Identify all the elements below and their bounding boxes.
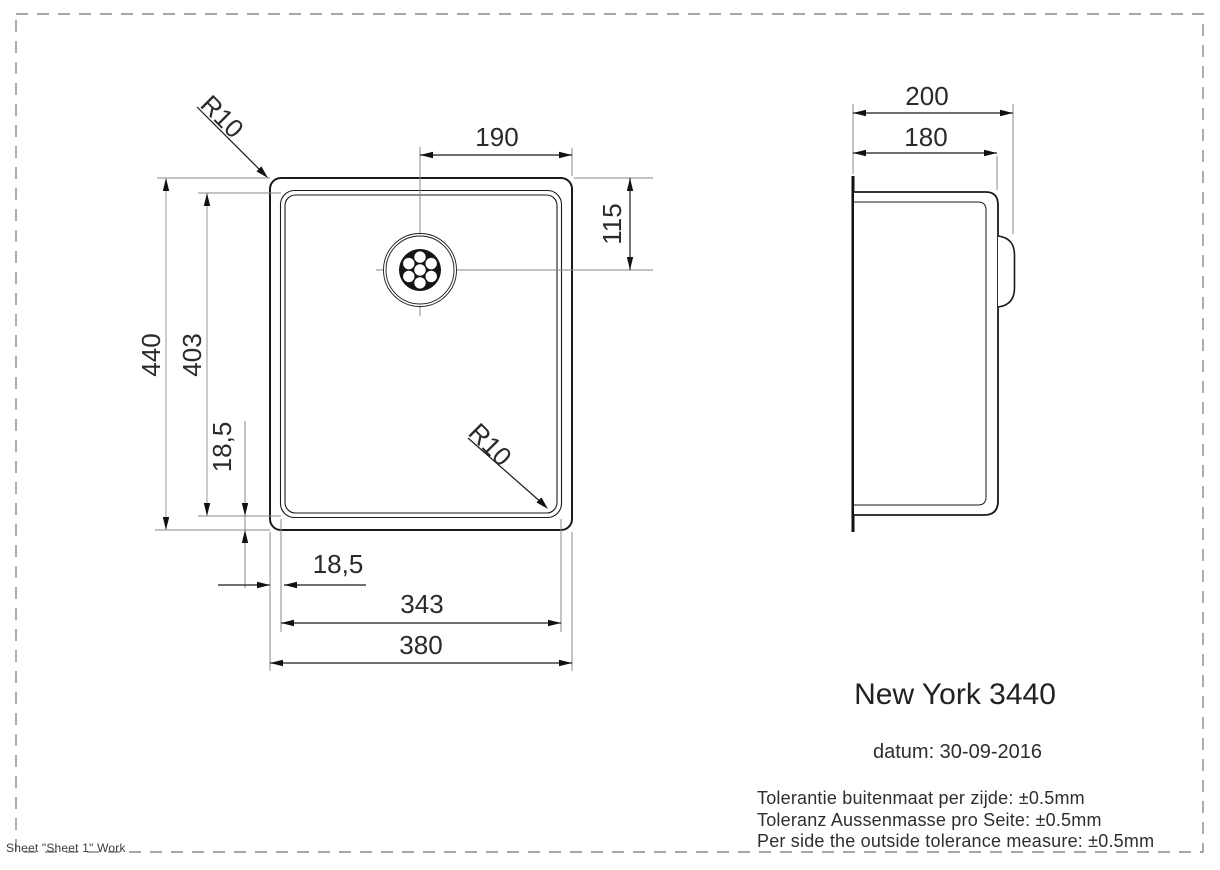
tolerance-line-en: Per side the outside tolerance measure: …: [757, 831, 1154, 853]
bowl-profile-outer: [854, 192, 998, 515]
dim-bowl-height: 403: [177, 193, 210, 516]
dim-depth-inner: 180: [853, 122, 997, 156]
dim-drain-from-right: 190: [420, 122, 572, 158]
dim-outer-height: 440: [136, 178, 169, 530]
dim-bowl-width: 343: [281, 589, 561, 626]
dim-label-18-5-h: 18,5: [313, 549, 364, 579]
dim-label-18-5-v: 18,5: [207, 422, 237, 473]
dim-label-403: 403: [177, 333, 207, 376]
radius-callout-top-left: R10: [195, 89, 268, 178]
dim-label-115: 115: [597, 203, 627, 244]
front-view: [270, 147, 653, 530]
dim-label-200: 200: [905, 81, 948, 111]
dim-drain-from-top: 115: [597, 178, 633, 270]
tolerance-line-de: Toleranz Aussenmasse pro Seite: ±0.5mm: [757, 810, 1154, 832]
sheet-label: Sheet "Sheet 1" Work: [6, 841, 126, 855]
dim-label-440: 440: [136, 333, 166, 376]
drawing-sheet: { "drawing": { "front_view": { "labels":…: [0, 0, 1220, 870]
sink-outer-edge: [270, 178, 572, 530]
product-title: New York 3440: [800, 678, 1110, 712]
date-line: datum: 30-09-2016: [805, 741, 1110, 764]
dim-label-190: 190: [475, 122, 518, 152]
radius-label-top: R10: [195, 89, 250, 144]
dim-rim-inset-horizontal: 18,5: [218, 549, 366, 588]
cad-canvas: 190 115 440 403 18,5: [0, 0, 1220, 870]
dim-label-180: 180: [904, 122, 947, 152]
dim-depth-outer: 200: [853, 81, 1013, 116]
tolerance-block: Tolerantie buitenmaat per zijde: ±0.5mm …: [757, 788, 1154, 853]
dim-outer-width: 380: [270, 630, 572, 666]
dim-rim-inset-vertical: 18,5: [207, 422, 248, 543]
dim-label-380: 380: [399, 630, 442, 660]
page-border: [16, 14, 1203, 852]
tolerance-line-nl: Tolerantie buitenmaat per zijde: ±0.5mm: [757, 788, 1154, 810]
side-view: [853, 176, 1015, 532]
dim-label-343: 343: [400, 589, 443, 619]
drain-icon: [384, 234, 457, 307]
drain-outlet-profile: [998, 236, 1015, 307]
